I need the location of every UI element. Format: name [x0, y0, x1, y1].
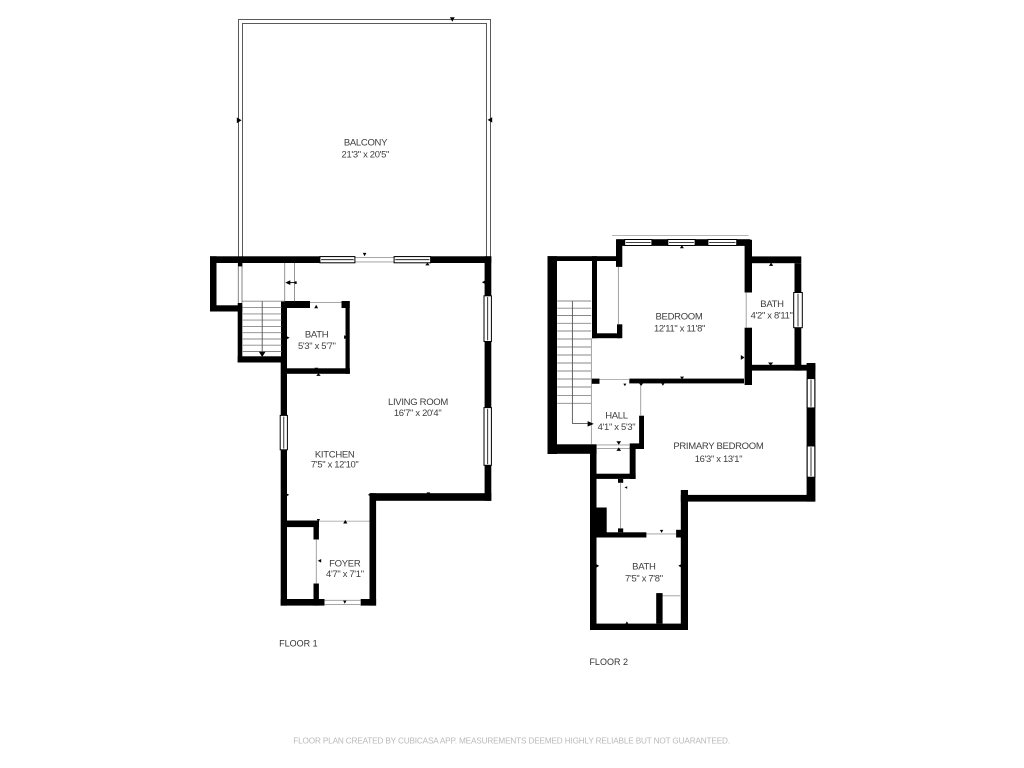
svg-text:BATH: BATH [305, 329, 329, 340]
svg-text:12'11" x 11'8": 12'11" x 11'8" [654, 323, 705, 334]
svg-text:7'5" x 12'10": 7'5" x 12'10" [311, 458, 359, 469]
svg-text:BATH: BATH [760, 299, 784, 310]
svg-text:FLOOR 2: FLOOR 2 [589, 657, 628, 667]
svg-text:4'1" x 5'3": 4'1" x 5'3" [598, 421, 636, 432]
svg-text:16'7" x 20'4": 16'7" x 20'4" [394, 407, 442, 418]
svg-text:7'5" x 7'8": 7'5" x 7'8" [625, 573, 663, 584]
svg-text:BEDROOM: BEDROOM [656, 312, 703, 323]
svg-text:FLOOR 1: FLOOR 1 [279, 638, 318, 648]
svg-text:PRIMARY BEDROOM: PRIMARY BEDROOM [673, 441, 764, 452]
svg-text:5'3" x 5'7": 5'3" x 5'7" [298, 340, 336, 351]
svg-text:FLOOR PLAN CREATED BY CUBICASA: FLOOR PLAN CREATED BY CUBICASA APP. MEAS… [293, 736, 730, 745]
svg-text:4'7" x 7'1": 4'7" x 7'1" [326, 568, 364, 579]
svg-text:BATH: BATH [632, 562, 656, 573]
svg-text:4'2" x 8'11": 4'2" x 8'11" [751, 310, 793, 321]
svg-text:21'3" x 20'5": 21'3" x 20'5" [342, 148, 390, 159]
svg-text:HALL: HALL [605, 411, 628, 422]
svg-text:BALCONY: BALCONY [344, 137, 388, 148]
svg-text:16'3" x 13'1": 16'3" x 13'1" [695, 453, 743, 464]
